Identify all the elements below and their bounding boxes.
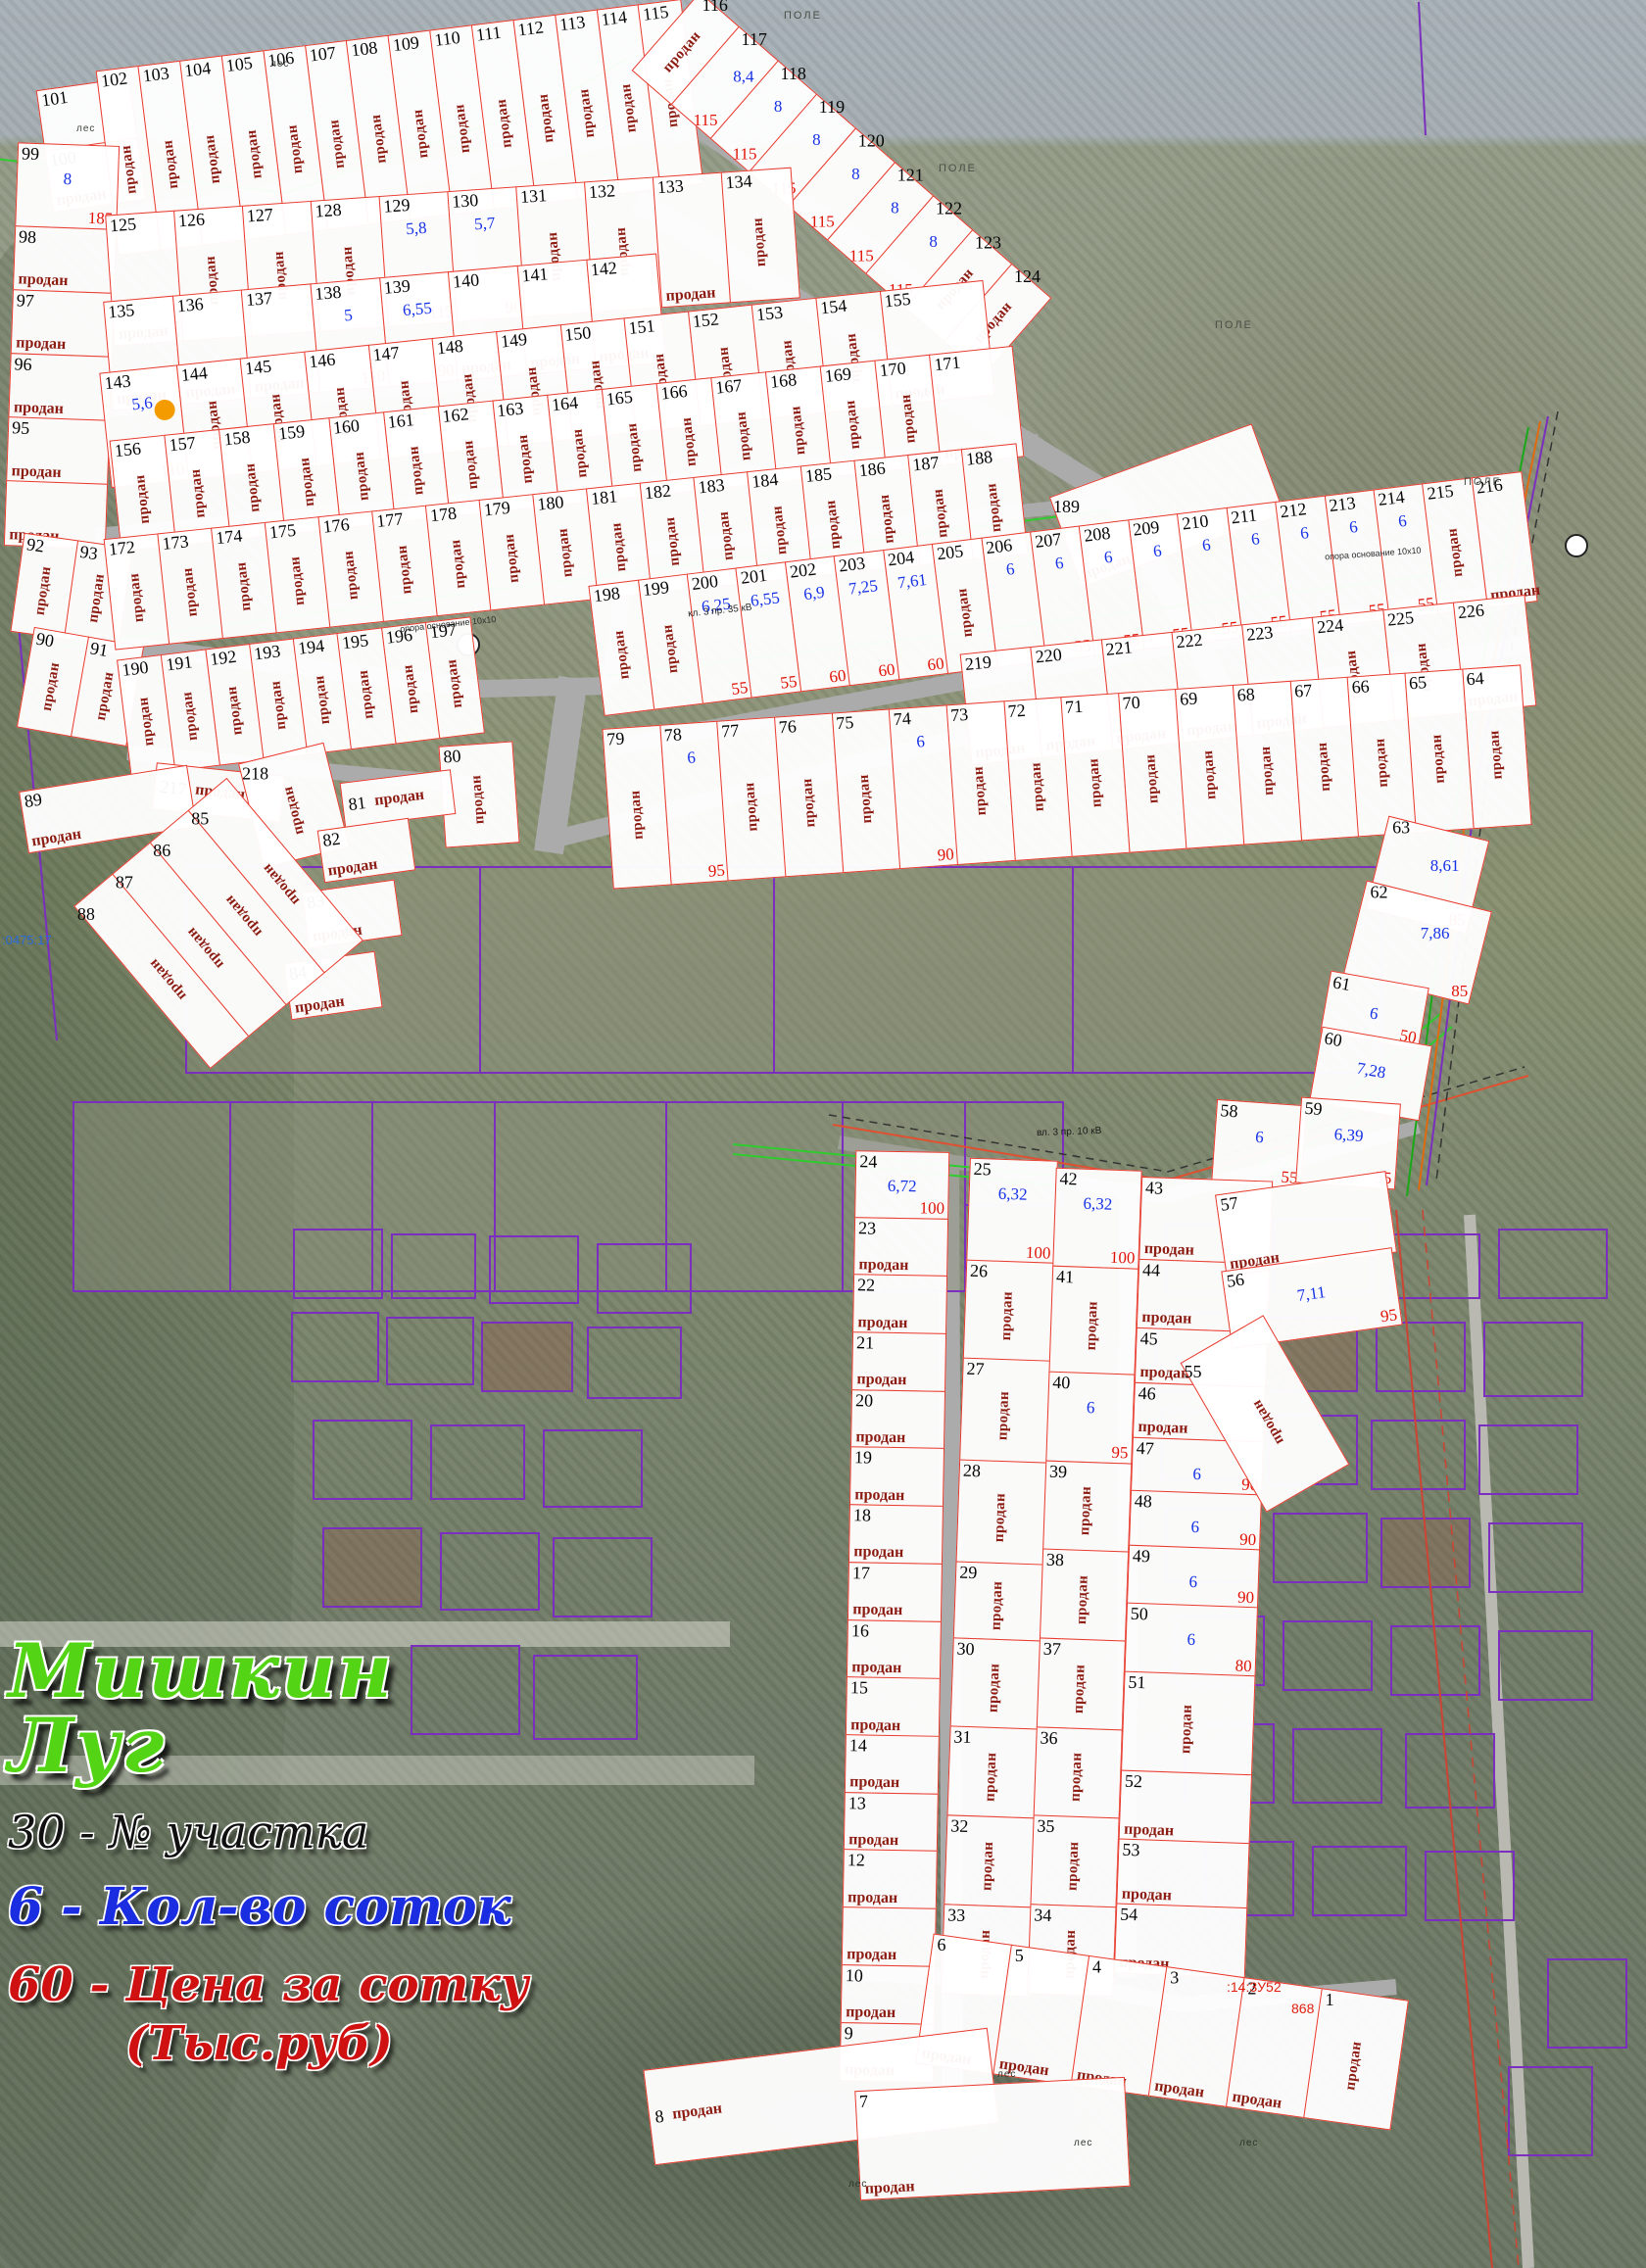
plot-number: 8 xyxy=(654,2105,664,2127)
plot-number: 203 xyxy=(838,554,866,577)
plot-number: 116 xyxy=(702,0,728,16)
plot-status-sold: продан xyxy=(126,572,148,623)
plot-number: 10 xyxy=(846,1965,863,1986)
plot-status-sold: продан xyxy=(847,1947,896,1965)
plot-number: 139 xyxy=(383,276,411,299)
plot-number: 133 xyxy=(656,176,684,199)
plot-number: 73 xyxy=(950,704,969,726)
plot-number: 153 xyxy=(755,303,784,325)
plot-price: 95 xyxy=(1380,1305,1399,1327)
plot-status-sold: продан xyxy=(665,284,716,306)
plot-number: 162 xyxy=(442,405,470,427)
plot-price: 60 xyxy=(828,665,847,687)
plot-size: 8 xyxy=(929,232,938,252)
plot-number: 198 xyxy=(593,583,621,606)
plot-status-sold: продан xyxy=(179,691,202,742)
plot-status-sold: продан xyxy=(515,433,537,484)
map-label: 868 xyxy=(1291,2001,1314,2016)
plot-32[interactable]: 32продан xyxy=(944,1814,1035,1907)
plot-number: 194 xyxy=(297,636,325,659)
plot-number: 62 xyxy=(1371,883,1388,903)
plot-status-sold: продан xyxy=(849,1774,899,1793)
plot-number: 38 xyxy=(1046,1550,1065,1570)
plot-number: 109 xyxy=(392,32,420,56)
plot-size: 6 xyxy=(1152,542,1163,562)
plot-number: 20 xyxy=(855,1390,873,1411)
plot-status-sold: продан xyxy=(659,623,682,674)
plot-status-sold: продан xyxy=(555,527,576,578)
plot-status-sold: продан xyxy=(287,555,309,606)
plot-19[interactable]: 19продан xyxy=(849,1447,944,1508)
plot-number: 208 xyxy=(1083,523,1111,547)
plot-number: 114 xyxy=(600,7,628,30)
plot-number: 161 xyxy=(387,410,415,432)
plot-49[interactable]: 49690 xyxy=(1127,1545,1260,1610)
plot-number: 188 xyxy=(965,447,993,469)
plot-number: 82 xyxy=(321,829,342,851)
plot-number: 40 xyxy=(1052,1373,1071,1393)
plot-status-sold: продан xyxy=(734,410,755,461)
plot-number: 65 xyxy=(1408,672,1427,694)
plot-14[interactable]: 14продан xyxy=(845,1734,940,1795)
plot-size: 6 xyxy=(1348,517,1359,538)
plot-price: 85 xyxy=(1451,982,1468,1001)
plot-status-sold: продан xyxy=(1074,1575,1092,1625)
plot-number: 145 xyxy=(244,357,272,379)
plot-price: 80 xyxy=(1234,1656,1252,1676)
plot-98[interactable]: 98продан xyxy=(13,225,117,294)
map-label: :14:3У52 xyxy=(1227,1979,1282,1995)
plot-number: 135 xyxy=(107,300,135,322)
plot-number: 101 xyxy=(40,87,70,111)
plot-133[interactable]: 133продан xyxy=(653,172,732,308)
plot-number: 170 xyxy=(879,359,907,381)
map-label: ПОЛЕ xyxy=(1215,319,1253,331)
plot-price: 90 xyxy=(1237,1588,1255,1609)
plot-number: 60 xyxy=(1323,1029,1343,1051)
plot-status-sold: продан xyxy=(877,493,898,544)
plot-42[interactable]: 426,32100 xyxy=(1052,1168,1141,1270)
plot-status-sold: продан xyxy=(1315,742,1334,792)
plot-status-sold: продан xyxy=(789,405,810,456)
plot-number: 225 xyxy=(1386,607,1415,630)
plot-status-sold: продан xyxy=(356,669,378,720)
plot-size: 6,39 xyxy=(1333,1125,1364,1146)
plot-status-sold: продан xyxy=(494,98,516,149)
plot-number: 80 xyxy=(443,746,461,767)
plot-status-sold: продан xyxy=(853,1544,903,1563)
map-label: лес xyxy=(1239,2138,1258,2148)
plot-41[interactable]: 41продан xyxy=(1049,1265,1138,1375)
plot-number: 199 xyxy=(642,577,670,601)
plot-size: 6 xyxy=(1005,559,1016,580)
plot-number: 143 xyxy=(104,371,132,394)
plot-97[interactable]: 97продан xyxy=(11,289,115,358)
plot-number: 224 xyxy=(1316,615,1344,638)
plot-number: 168 xyxy=(769,369,798,392)
plot-16[interactable]: 16продан xyxy=(847,1619,942,1680)
plot-number: 149 xyxy=(500,329,528,352)
plot-number: 42 xyxy=(1059,1169,1078,1189)
plot-number: 46 xyxy=(1138,1383,1156,1404)
plot-number: 24 xyxy=(859,1152,877,1173)
plot-number: 158 xyxy=(222,427,251,450)
plot-number: 171 xyxy=(933,353,961,375)
plot-unnumbered[interactable]: продан xyxy=(842,1906,937,1967)
plot-status-sold: продан xyxy=(971,766,991,816)
plot-number: 176 xyxy=(322,514,351,537)
plot-status-sold: продан xyxy=(1122,1886,1173,1906)
plot-status-sold: продан xyxy=(119,144,141,195)
plot-number: 123 xyxy=(975,232,1001,253)
plot-27[interactable]: 27продан xyxy=(959,1358,1050,1465)
plot-number: 205 xyxy=(936,541,964,564)
plot-38[interactable]: 38продан xyxy=(1040,1549,1129,1642)
plot-size: 8 xyxy=(851,165,860,184)
plot-status-sold: продан xyxy=(1200,749,1220,799)
plot-64[interactable]: 64продан xyxy=(1462,665,1531,829)
plot-number: 98 xyxy=(19,226,37,247)
plot-number: 122 xyxy=(936,199,962,219)
plot-number: 4 xyxy=(1092,1957,1101,1978)
plot-status-sold: продан xyxy=(312,674,334,725)
plot-23[interactable]: 23продан xyxy=(853,1217,948,1278)
plot-number: 67 xyxy=(1293,681,1312,702)
plot-status-sold: продан xyxy=(1065,1841,1084,1891)
plot-price: 100 xyxy=(1110,1248,1136,1269)
plot-28[interactable]: 28продан xyxy=(956,1460,1047,1567)
plot-number: 30 xyxy=(956,1638,975,1659)
plot-number: 130 xyxy=(452,190,479,213)
plot-number: 27 xyxy=(966,1359,985,1379)
plot-number: 61 xyxy=(1331,973,1352,995)
plot-18[interactable]: 18продан xyxy=(848,1504,944,1565)
plot-number: 125 xyxy=(109,215,136,237)
plot-52[interactable]: 52продан xyxy=(1119,1770,1252,1845)
plot-number: 71 xyxy=(1065,697,1084,718)
plot-status-sold: продан xyxy=(1142,753,1162,803)
plot-number: 175 xyxy=(268,520,297,543)
plot-status-sold: продан xyxy=(662,515,684,566)
plot-number: 26 xyxy=(970,1261,989,1281)
plot-price: 60 xyxy=(926,653,944,675)
plot-size: 6 xyxy=(1397,511,1408,532)
plot-status-sold: продан xyxy=(1086,757,1105,807)
reserved-dot-icon xyxy=(154,399,176,421)
plot-size: 6,72 xyxy=(888,1177,917,1197)
map-label: ПОЛЕ xyxy=(784,10,822,22)
plot-status-sold: продан xyxy=(994,1391,1013,1441)
plot-number: 164 xyxy=(551,393,579,415)
plot-15[interactable]: 15продан xyxy=(846,1676,941,1737)
plot-number: 165 xyxy=(605,387,634,410)
plot-22[interactable]: 22продан xyxy=(852,1275,947,1335)
plot-number: 191 xyxy=(165,652,193,676)
plot-status-sold: продан xyxy=(260,860,304,908)
plot-number: 96 xyxy=(14,354,32,374)
plot-number: 131 xyxy=(519,185,547,208)
plot-status-sold: продан xyxy=(1144,1241,1195,1261)
plot-status-sold: продан xyxy=(136,696,159,747)
plot-51[interactable]: 51продан xyxy=(1121,1671,1255,1776)
map-label: лес xyxy=(848,2179,867,2190)
plot-number: 97 xyxy=(16,290,34,311)
map-label: :0475:17 xyxy=(2,933,52,947)
plot-status-sold: продан xyxy=(823,499,845,550)
plot-number: 140 xyxy=(452,270,480,293)
plot-status-sold: продан xyxy=(406,445,427,496)
plot-number: 9 xyxy=(845,2023,853,2044)
plot-number: 187 xyxy=(911,453,940,475)
plot-number: 190 xyxy=(121,657,149,681)
plot-status-sold: продан xyxy=(373,787,425,810)
col-99-94: 99818598продан97продан96продан95проданпр… xyxy=(5,143,119,548)
plot-status-sold: продан xyxy=(851,1659,901,1677)
plot-status-sold: продан xyxy=(742,782,761,832)
map-label: лес xyxy=(270,59,289,70)
plot-99[interactable]: 998185 xyxy=(15,143,120,231)
plot-number: 200 xyxy=(691,571,719,595)
map-label: лес xyxy=(997,2069,1016,2080)
plot-status-sold: продан xyxy=(233,560,255,611)
plot-number: 154 xyxy=(819,296,847,318)
plot-number: 91 xyxy=(88,639,109,661)
plot-1[interactable]: 1продан xyxy=(1303,1988,1408,2130)
plot-number: 118 xyxy=(780,64,805,84)
plot-number: 218 xyxy=(242,764,268,785)
plot-size: 6 xyxy=(1250,529,1261,550)
plot-95[interactable]: 95продан xyxy=(6,416,110,485)
plot-price: 100 xyxy=(919,1199,944,1219)
legend-plot-size: 6 - Кол-во соток xyxy=(8,1881,557,1935)
plot-status-sold: продан xyxy=(1257,746,1277,796)
plot-number: 221 xyxy=(1105,637,1134,659)
plot-status-sold: продан xyxy=(930,488,951,539)
plot-number: 220 xyxy=(1035,645,1063,667)
plot-size: 5,7 xyxy=(473,214,496,234)
plot-status-sold: продан xyxy=(716,510,738,561)
plot-21[interactable]: 21продан xyxy=(851,1331,946,1392)
map-label: лес xyxy=(1074,2138,1092,2148)
plot-29[interactable]: 29продан xyxy=(953,1562,1043,1642)
plot-31[interactable]: 31продан xyxy=(947,1726,1039,1819)
plot-map: Мишкин Луг 30 - № участка 6 - Кол-во сот… xyxy=(0,0,1646,2268)
plot-25[interactable]: 256,32100 xyxy=(966,1158,1057,1265)
plot-status-sold: продан xyxy=(341,550,363,601)
plot-number: 56 xyxy=(1226,1270,1246,1292)
plot-number: 79 xyxy=(606,729,625,750)
plot-status-sold: продан xyxy=(468,774,488,824)
plot-number: 88 xyxy=(77,904,95,925)
plot-number: 226 xyxy=(1457,601,1485,623)
plot-status-sold: продан xyxy=(769,505,791,555)
plot-13[interactable]: 13продан xyxy=(844,1792,939,1853)
plot-number: 18 xyxy=(853,1505,871,1525)
plot-number: 142 xyxy=(590,258,618,280)
plot-number: 215 xyxy=(1427,481,1455,505)
plot-status-sold: продан xyxy=(618,83,641,134)
power-pole-icon xyxy=(1566,535,1587,556)
plot-size: 8 xyxy=(812,131,821,151)
plot-status-sold: продан xyxy=(854,1486,904,1505)
plot-number: 174 xyxy=(215,526,243,549)
plot-number: 47 xyxy=(1136,1437,1154,1458)
plot-number: 89 xyxy=(23,790,43,812)
plot-number: 155 xyxy=(884,289,912,312)
plot-status-sold: продан xyxy=(610,629,633,680)
plot-20[interactable]: 20продан xyxy=(850,1389,945,1450)
plot-number: 7 xyxy=(859,2092,869,2112)
plot-17[interactable]: 17продан xyxy=(847,1562,943,1622)
plot-status-sold: продан xyxy=(448,538,469,589)
plot-number: 102 xyxy=(100,69,128,92)
plot-size: 6 xyxy=(916,732,926,752)
plot-size: 6 xyxy=(1188,1572,1197,1592)
plot-status-sold: продан xyxy=(184,924,228,972)
plot-status-sold: продан xyxy=(18,271,69,291)
plot-number: 50 xyxy=(1130,1604,1148,1624)
plot-size: 5 xyxy=(343,306,353,326)
plot-number: 13 xyxy=(848,1793,866,1813)
plot-status-sold: продан xyxy=(852,1601,902,1619)
plot-number: 147 xyxy=(372,343,401,365)
plot-number: 173 xyxy=(162,531,190,554)
plot-number: 152 xyxy=(692,310,720,332)
plot-48[interactable]: 48690 xyxy=(1129,1490,1262,1551)
plot-30[interactable]: 30продан xyxy=(950,1637,1041,1730)
plot-40[interactable]: 40695 xyxy=(1045,1372,1135,1465)
plot-number: 29 xyxy=(959,1563,978,1583)
plot-number: 69 xyxy=(1180,689,1198,710)
plot-number: 121 xyxy=(896,165,923,185)
plot-number: 95 xyxy=(12,417,30,438)
plot-status-sold: продан xyxy=(989,1580,1007,1630)
plot-status-sold: продан xyxy=(394,544,415,595)
plot-number: 87 xyxy=(116,873,133,893)
plot-number: 5 xyxy=(1015,1946,1024,1966)
plot-status-sold: продан xyxy=(243,129,266,180)
plot-number: 129 xyxy=(383,195,411,217)
plot-36[interactable]: 36продан xyxy=(1034,1726,1123,1819)
plot-number: 184 xyxy=(750,469,779,492)
plot-58[interactable]: 58655 xyxy=(1211,1099,1306,1189)
plot-number: 204 xyxy=(887,548,915,571)
plot-number: 111 xyxy=(475,23,503,46)
plot-number: 156 xyxy=(114,439,142,461)
plot-status-sold: продан xyxy=(16,335,67,355)
plot-price: 55 xyxy=(779,672,798,694)
plot-status-sold: продан xyxy=(1084,1301,1102,1351)
plot-number: 77 xyxy=(721,720,740,742)
plot-number: 172 xyxy=(108,537,136,559)
plot-size: 6 xyxy=(687,748,697,769)
plot-number: 32 xyxy=(950,1815,969,1836)
plot-status-sold: продан xyxy=(1029,762,1048,812)
plot-39[interactable]: 39продан xyxy=(1042,1460,1132,1553)
plot-number: 166 xyxy=(660,381,689,404)
plot-number: 119 xyxy=(819,97,845,118)
plot-number: 179 xyxy=(483,498,511,520)
legend-plot-number: 30 - № участка xyxy=(8,1809,557,1856)
plot-number: 115 xyxy=(642,2,670,25)
plot-number: 104 xyxy=(183,58,212,81)
legend: Мишкин Луг 30 - № участка 6 - Кол-во сот… xyxy=(8,1634,557,2069)
plot-price: 115 xyxy=(810,213,835,232)
plot-size: 5,8 xyxy=(406,218,428,239)
plot-number: 48 xyxy=(1135,1491,1153,1512)
plot-50[interactable]: 50680 xyxy=(1125,1603,1258,1677)
plot-status-sold: продан xyxy=(1077,1486,1095,1536)
plot-number: 181 xyxy=(590,486,618,508)
plot-number: 25 xyxy=(973,1159,992,1180)
plot-number: 37 xyxy=(1042,1639,1061,1660)
plot-number: 163 xyxy=(496,399,524,421)
plot-number: 195 xyxy=(341,630,369,653)
plot-96[interactable]: 96продан xyxy=(9,353,113,421)
plot-status-sold: продан xyxy=(1444,526,1467,577)
plot-number: 15 xyxy=(850,1678,868,1699)
plot-status-sold: продан xyxy=(624,421,646,472)
plot-status-sold: продан xyxy=(671,2099,723,2123)
plot-status-sold: продан xyxy=(267,680,290,731)
plot-size: 6 xyxy=(1190,1518,1199,1537)
plot-price: 90 xyxy=(1239,1529,1257,1550)
map-label: вл. 3 пр. 10 кВ xyxy=(1037,1126,1102,1138)
plot-status-sold: продан xyxy=(679,416,701,467)
plot-status-sold: продан xyxy=(146,955,190,1003)
plot-number: 3 xyxy=(1170,1968,1179,1989)
plot-number: 186 xyxy=(858,458,887,481)
plot-number: 92 xyxy=(25,534,46,556)
plot-12[interactable]: 12продан xyxy=(843,1850,938,1910)
plot-status-sold: продан xyxy=(1124,1820,1175,1840)
plot-number: 167 xyxy=(714,375,743,398)
plot-134[interactable]: 134продан xyxy=(721,168,800,303)
plot-status-sold: продан xyxy=(502,533,523,584)
plot-status-sold: продан xyxy=(1068,1753,1087,1803)
plot-number: 28 xyxy=(963,1461,982,1481)
plot-number: 127 xyxy=(246,205,273,227)
plot-status-sold: продан xyxy=(535,93,557,144)
plot-37[interactable]: 37продан xyxy=(1037,1637,1126,1730)
plot-size: 6,55 xyxy=(750,589,781,611)
plot-number: 16 xyxy=(851,1620,869,1641)
plot-size: 6 xyxy=(1054,554,1065,574)
plot-number: 45 xyxy=(1139,1328,1158,1349)
plot-number: 157 xyxy=(169,433,197,456)
plot-number: 192 xyxy=(209,647,237,670)
plot-26[interactable]: 26продан xyxy=(963,1260,1054,1362)
map-label: ПОЛЕ xyxy=(1464,476,1502,488)
plot-status-sold: продан xyxy=(847,1889,897,1907)
plot-24[interactable]: 246,72100 xyxy=(854,1150,949,1220)
plot-status-sold: продан xyxy=(1249,1396,1288,1447)
plot-53[interactable]: 53продан xyxy=(1116,1839,1249,1910)
plot-number: 146 xyxy=(308,350,336,372)
plot-status-sold: продан xyxy=(577,88,600,139)
plot-number: 53 xyxy=(1122,1840,1140,1860)
field-parcel xyxy=(73,1102,965,1291)
plot-size: 6 xyxy=(1255,1128,1265,1148)
plot-number: 85 xyxy=(191,809,209,830)
plot-number: 193 xyxy=(253,641,281,664)
plot-number: 54 xyxy=(1120,1905,1138,1925)
plot-status-sold: продан xyxy=(570,427,592,478)
plot-35[interactable]: 35продан xyxy=(1031,1814,1120,1907)
plot-number: 138 xyxy=(315,282,343,305)
plot-status-sold: продан xyxy=(864,2178,915,2198)
plot-number: 34 xyxy=(1034,1905,1052,1925)
